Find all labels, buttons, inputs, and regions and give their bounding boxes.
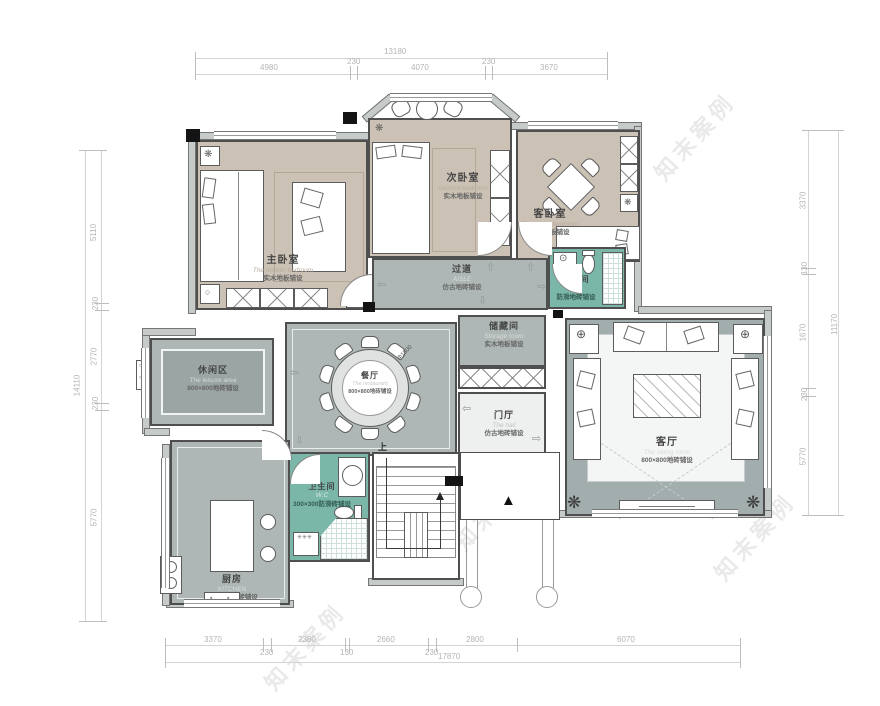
dim-top-seg: 4980 — [260, 63, 278, 72]
arrow-down-icon: ⇩ — [478, 296, 487, 307]
stair-path — [440, 500, 441, 549]
wardrobe — [260, 288, 294, 308]
dining-table-group: 餐厅 The restaurant 800×800地砖铺设 Φ1500 — [318, 336, 422, 440]
dim-top-seg: 4070 — [411, 63, 429, 72]
column-marker — [343, 112, 357, 124]
floor-plan-canvas: 知末案例 知末案例 知末案例 知末案例 ❋ ○ 主卧室 The master — [0, 0, 880, 706]
room-name: 过道 — [422, 264, 502, 276]
dim-left-total: 14110 — [72, 375, 81, 397]
kitchen-island — [210, 500, 254, 572]
wardrobe — [490, 150, 510, 198]
room-kitchen: 厨房 KITCHEN 300×300地砖铺设 — [170, 440, 290, 605]
column-marker — [186, 129, 200, 142]
toilet-tank — [582, 250, 595, 256]
dim-bottom-seg: 3370 — [204, 635, 222, 644]
sink — [342, 465, 363, 486]
dim-left-seg: 5110 — [89, 224, 98, 241]
washing-machine: ✳✳✳ — [293, 532, 319, 556]
room-name-en: Storage room — [464, 333, 544, 341]
toilet — [582, 254, 595, 274]
wardrobe — [294, 288, 328, 308]
room-leisure: 休闲区 The leisure area 800×800地砖铺设 — [150, 338, 274, 426]
window — [763, 336, 772, 488]
closet-cell — [460, 369, 481, 387]
room-storage: 储藏间 Storage room 实木地板铺设 — [458, 315, 546, 367]
dim-right-seg: 5770 — [798, 448, 807, 466]
column-marker — [553, 310, 563, 318]
curtain-panel — [432, 148, 476, 252]
room-master-bedroom: ❋ ○ 主卧室 The master bedroom 实木地板铺设 — [196, 140, 368, 310]
wall-segment — [188, 132, 196, 314]
column-marker — [445, 476, 463, 486]
dim-line — [165, 662, 740, 663]
column-shaft — [466, 520, 478, 588]
room-name-en: The hall — [464, 422, 544, 430]
plant-icon: ❋ — [375, 124, 383, 134]
coffee-table — [633, 374, 701, 418]
room-floor-note: 实木地板铺设 — [464, 341, 544, 349]
nightstand — [200, 146, 220, 166]
nightstand — [620, 194, 638, 212]
column-base — [536, 586, 558, 608]
staircase — [372, 452, 460, 580]
arrow-right-icon: ⇨ — [537, 282, 546, 293]
window — [141, 348, 150, 418]
wall-segment — [638, 306, 772, 314]
corner-table — [733, 324, 763, 354]
window — [161, 458, 170, 588]
pillow — [202, 203, 216, 224]
arrow-left-icon: ⇦ — [462, 404, 471, 415]
room-dining: 餐厅 The restaurant 800×800地砖铺设 Φ1500 ⇦ ⇩ — [285, 322, 457, 456]
stair-path — [386, 458, 387, 548]
room-label: 休闲区 The leisure area 800×800地砖铺设 — [165, 365, 261, 394]
watermark: 知末案例 — [646, 85, 742, 187]
room-floor-note: 仿古地砖铺设 — [422, 284, 502, 292]
dim-bottom-total: 17870 — [438, 652, 460, 661]
column-base — [460, 586, 482, 608]
dim-bottom-seg: 2800 — [466, 635, 484, 644]
wall-segment — [142, 328, 196, 336]
room-floor-note: 仿古地砖铺设 — [464, 430, 544, 438]
dim-left-seg: 2770 — [89, 348, 98, 366]
closet-cell — [523, 369, 544, 387]
window — [184, 599, 280, 608]
stair-path — [386, 548, 440, 549]
entry-triangle-icon: ▲ — [501, 493, 516, 508]
column-marker — [363, 302, 375, 312]
shower-area — [320, 518, 368, 560]
dim-line — [195, 74, 608, 75]
room-label: 门厅 The hall 仿古地砖铺设 — [464, 410, 544, 439]
room-label: 储藏间 Storage room 实木地板铺设 — [464, 321, 544, 350]
room-name-en: The leisure area — [165, 377, 261, 385]
dim-line — [808, 130, 809, 515]
plant-icon: ❋ — [746, 494, 760, 511]
dim-line — [195, 58, 608, 59]
dim-top-total: 13180 — [384, 47, 406, 56]
dim-line — [101, 150, 102, 622]
room-label: 过道 AISLE 仿古地砖铺设 — [422, 264, 502, 293]
wardrobe — [620, 164, 638, 192]
window — [528, 121, 618, 130]
closet-cell — [481, 369, 502, 387]
arrow-left-icon: ⇦ — [377, 280, 386, 291]
room-name: 门厅 — [464, 410, 544, 422]
room-floor-note: 800×800地砖铺设 — [165, 385, 261, 393]
arrow-up-icon: ⇧ — [486, 263, 495, 274]
arrow-right-icon: ⇨ — [532, 434, 541, 445]
stool — [260, 546, 276, 562]
dim-bottom-seg: 130 — [340, 648, 353, 657]
dim-right-seg: 1670 — [798, 324, 807, 342]
toilet — [334, 506, 354, 519]
entry-porch: ▲ — [460, 452, 560, 520]
pillow — [615, 229, 629, 242]
arrow-up-icon: ⇧ — [526, 263, 535, 274]
blanket-line — [238, 172, 239, 280]
hall-closet — [458, 367, 546, 389]
round-table-top — [342, 360, 398, 416]
room-name-en: AISLE — [422, 276, 502, 284]
nightstand — [200, 284, 220, 304]
room-name: 储藏间 — [464, 321, 544, 333]
stool — [260, 514, 276, 530]
cushion — [577, 409, 596, 428]
column-shaft — [542, 520, 554, 588]
leisure-rug: 休闲区 The leisure area 800×800地砖铺设 — [161, 349, 265, 415]
plant-icon: ❋ — [567, 494, 581, 511]
corner-table — [569, 324, 599, 354]
room-aisle: 过道 AISLE 仿古地砖铺设 ⇦ ⇨ ⇧ ⇧ ⇩ — [372, 258, 548, 310]
dim-line — [165, 645, 740, 646]
room-living: ⊕ ⊕ 客厅 The sitting room 800×800地砖铺设 ❋ ❋ — [565, 318, 765, 516]
wardrobe — [226, 288, 260, 308]
dim-top-seg: 3670 — [540, 63, 558, 72]
window — [592, 509, 738, 518]
dim-left-seg: 5770 — [89, 509, 98, 527]
dim-line — [838, 130, 839, 515]
toilet-tank — [354, 505, 362, 520]
stair-void — [404, 512, 428, 558]
window — [390, 93, 492, 102]
wall-segment — [144, 428, 170, 436]
room-floor-note: 防滑地砖铺设 — [550, 294, 602, 302]
window — [214, 131, 336, 140]
dim-bottom-seg: 6070 — [617, 635, 635, 644]
dim-line — [85, 150, 86, 622]
wardrobe — [620, 136, 638, 164]
room-name: 休闲区 — [165, 365, 261, 377]
cushion — [736, 409, 755, 428]
dim-bottom-seg: 2380 — [298, 635, 316, 644]
closet-cell — [502, 369, 523, 387]
shower-area — [602, 252, 623, 305]
stair-arrow-head — [436, 492, 444, 500]
dim-bottom-seg: 2660 — [377, 635, 395, 644]
chair — [580, 196, 602, 218]
pillow — [401, 145, 422, 159]
dim-right-seg: 3370 — [798, 192, 807, 210]
